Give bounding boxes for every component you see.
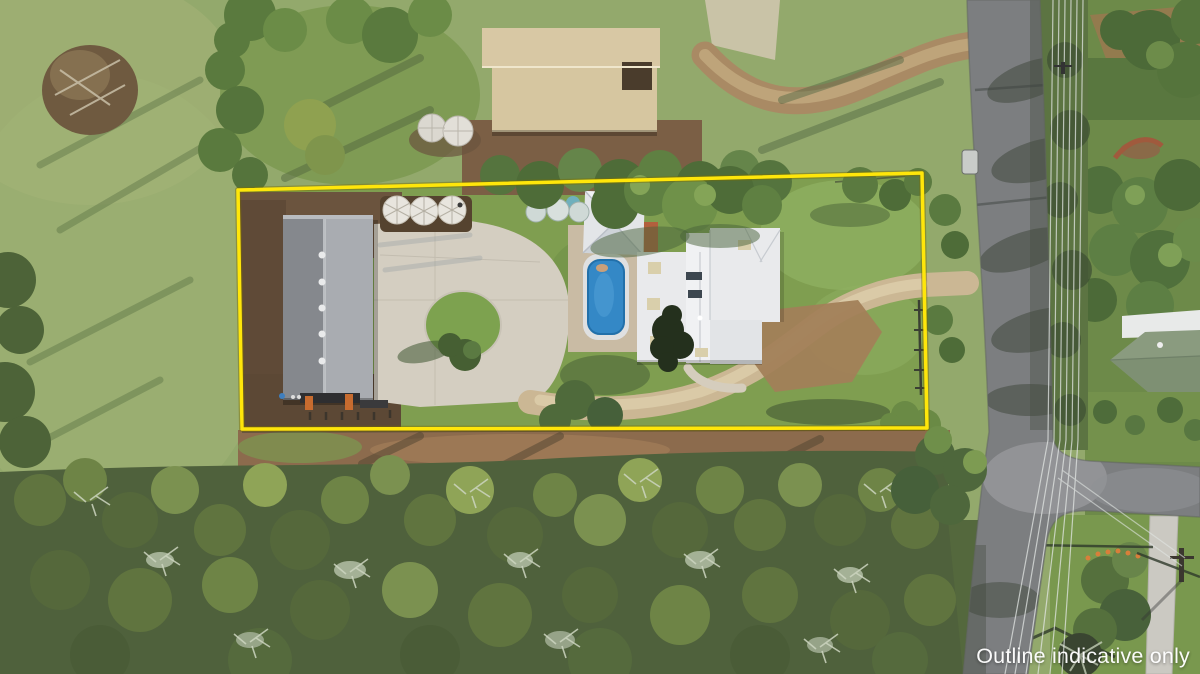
- scene-canvas: [0, 0, 1200, 674]
- bushland: [0, 451, 980, 674]
- tank-row: [380, 196, 472, 232]
- watermark-text: Outline indicative only: [976, 644, 1190, 669]
- aerial-photo: Outline indicative only: [0, 0, 1200, 674]
- barn-shed: [482, 28, 660, 136]
- brush-pile: [42, 45, 138, 135]
- parked-vehicle: [962, 150, 978, 174]
- swimming-pool: [583, 254, 629, 340]
- main-shed: [283, 215, 378, 405]
